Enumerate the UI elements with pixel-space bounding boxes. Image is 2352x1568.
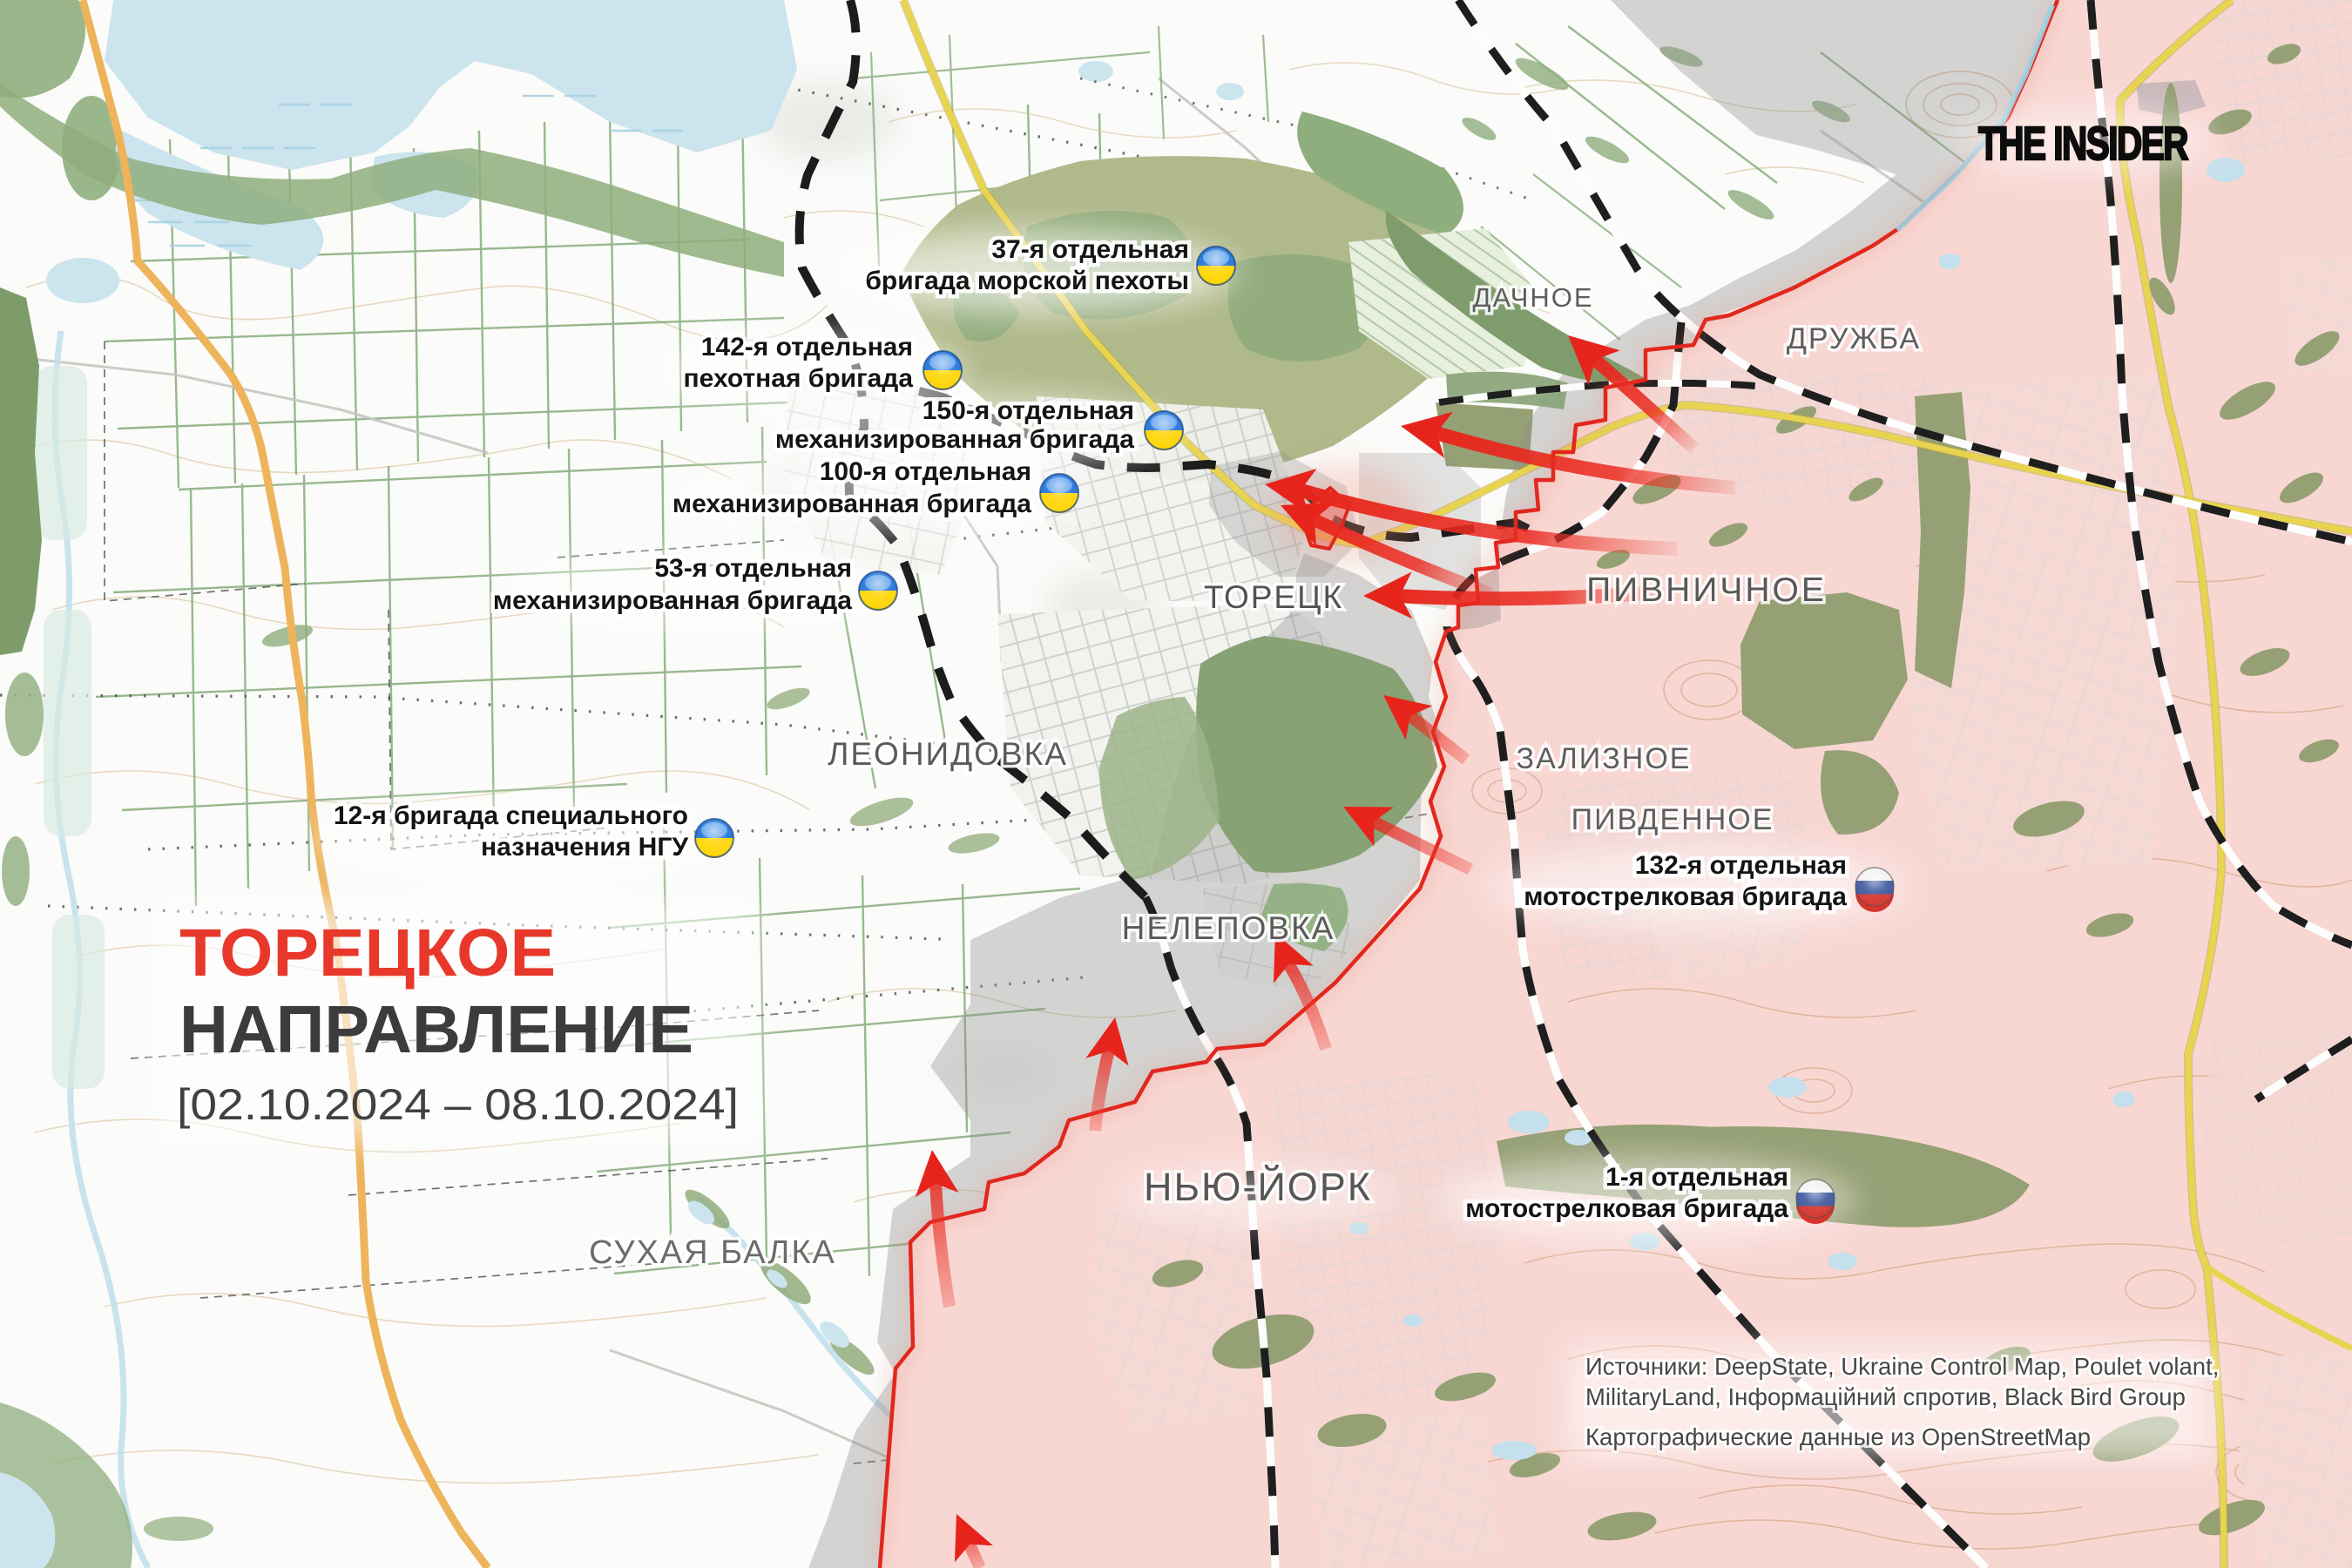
- svg-text:НАПРАВЛЕНИЕ: НАПРАВЛЕНИЕ: [179, 992, 693, 1067]
- svg-text:132-я отдельная: 132-я отдельная: [1635, 851, 1847, 880]
- svg-text:механизированная бригада: механизированная бригада: [493, 586, 852, 615]
- svg-text:Картографические данные из Ope: Картографические данные из OpenStreetMap: [1585, 1423, 2091, 1450]
- svg-text:ТОРЕЦК: ТОРЕЦК: [1204, 579, 1343, 615]
- svg-text:ТОРЕЦКОЕ: ТОРЕЦКОЕ: [179, 916, 556, 990]
- svg-text:ПИВНИЧНОЕ: ПИВНИЧНОЕ: [1586, 571, 1827, 609]
- svg-text:механизированная бригада: механизированная бригада: [672, 490, 1031, 518]
- svg-text:бригада морской пехоты: бригада морской пехоты: [865, 267, 1189, 295]
- svg-text:СУХАЯ БАЛКА: СУХАЯ БАЛКА: [589, 1234, 836, 1271]
- svg-text:1-я отдельная: 1-я отдельная: [1605, 1163, 1788, 1192]
- svg-text:ДРУЖБА: ДРУЖБА: [1787, 322, 1921, 355]
- svg-text:механизированная бригада: механизированная бригада: [775, 425, 1134, 454]
- svg-text:НЬЮ-ЙОРК: НЬЮ-ЙОРК: [1144, 1165, 1372, 1209]
- svg-text:назначения НГУ: назначения НГУ: [481, 833, 688, 862]
- svg-text:53-я отдельная: 53-я отдельная: [654, 554, 852, 583]
- svg-text:[02.10.2024 – 08.10.2024]: [02.10.2024 – 08.10.2024]: [177, 1080, 739, 1129]
- svg-text:37-я отдельная: 37-я отдельная: [991, 235, 1189, 264]
- svg-text:THE INSIDER: THE INSIDER: [1978, 118, 2188, 170]
- svg-text:НЕЛЕПОВКА: НЕЛЕПОВКА: [1122, 910, 1335, 946]
- svg-text:150-я отдельная: 150-я отдельная: [923, 396, 1134, 425]
- svg-text:ЛЕОНИДОВКА: ЛЕОНИДОВКА: [828, 736, 1068, 772]
- svg-text:ДАЧНОЕ: ДАЧНОЕ: [1472, 282, 1593, 313]
- svg-text:100-я отдельная: 100-я отдельная: [820, 457, 1031, 486]
- svg-text:мотострелковая бригада: мотострелковая бригада: [1524, 882, 1847, 911]
- svg-text:ПИВДЕННОЕ: ПИВДЕННОЕ: [1571, 803, 1774, 836]
- svg-text:пехотная бригада: пехотная бригада: [684, 364, 914, 393]
- svg-text:мотострелковая бригада: мотострелковая бригада: [1465, 1194, 1788, 1223]
- svg-text:ЗАЛИЗНОЕ: ЗАЛИЗНОЕ: [1517, 742, 1692, 775]
- svg-text:Источники: DeepState, Ukraine: Источники: DeepState, Ukraine Control Ma…: [1585, 1353, 2219, 1380]
- svg-text:12-я бригада специального: 12-я бригада специального: [334, 801, 688, 830]
- svg-text:142-я отдельная: 142-я отдельная: [701, 333, 913, 362]
- svg-text:MilitaryLand, Інформаційний сп: MilitaryLand, Інформаційний спротив, Bla…: [1585, 1383, 2186, 1410]
